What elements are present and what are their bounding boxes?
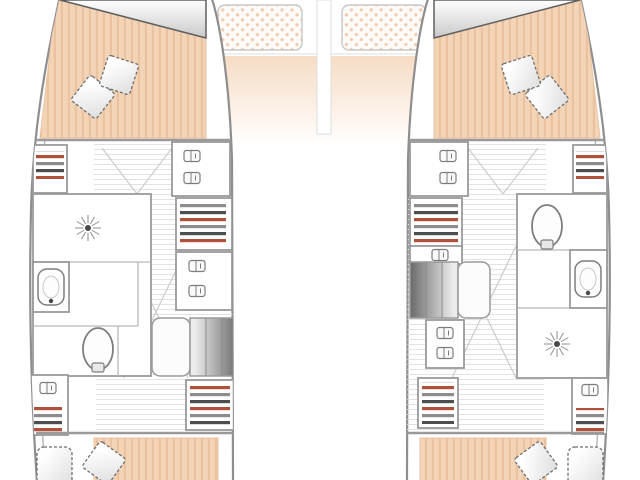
port-hull: [30, 0, 238, 480]
port-stairs: [190, 318, 238, 376]
trampoline-starboard: [342, 5, 426, 50]
starboard-forward-cabin: [434, 0, 600, 138]
floor-plan-canvas: [0, 0, 640, 480]
latch-icon: [184, 151, 200, 162]
starboard-companionway: [410, 262, 490, 318]
latch-icon: [440, 173, 456, 184]
starboard-bathroom: [517, 194, 607, 378]
latch-icon: [437, 348, 453, 359]
port-aft-locker: [30, 375, 68, 435]
toilet-icon: [532, 205, 562, 249]
starboard-hull-interior: [406, 0, 608, 480]
port-cabinet-forward: [172, 142, 230, 196]
starboard-wardrobe: [573, 145, 607, 193]
latch-icon: [184, 173, 200, 184]
latch-icon: [440, 151, 456, 162]
toilet-icon: [83, 328, 113, 372]
sink-icon: [38, 269, 64, 305]
center-seam-strip: [317, 0, 331, 134]
catamaran-floor-plan: [0, 0, 640, 480]
latch-icon: [437, 328, 453, 339]
latch-icon: [582, 385, 598, 396]
port-wardrobe-shelves: [36, 151, 64, 179]
port-stair-landing: [152, 318, 190, 376]
port-wardrobe: [33, 145, 67, 193]
latch-icon: [189, 286, 205, 297]
pillow-icon: [568, 447, 603, 480]
starboard-wardrobe-shelves: [576, 151, 604, 179]
port-forward-cabin: [40, 0, 206, 138]
sink-icon: [575, 261, 601, 297]
starboard-stairs: [410, 262, 458, 318]
foredeck: [208, 0, 432, 162]
starboard-forward-corridor-floor: [466, 144, 546, 196]
port-companionway: [152, 318, 238, 376]
port-forward-corridor-floor: [94, 144, 174, 196]
port-bathroom: [33, 194, 151, 376]
latch-icon: [40, 383, 56, 394]
starboard-aft-locker: [572, 378, 608, 434]
starboard-hull: [406, 0, 610, 480]
starboard-cabinet-forward: [410, 142, 468, 196]
pillow-icon: [37, 447, 72, 480]
starboard-stair-landing: [458, 262, 490, 318]
trampoline-port: [218, 5, 302, 50]
latch-icon: [189, 261, 205, 272]
latch-icon: [432, 250, 448, 261]
